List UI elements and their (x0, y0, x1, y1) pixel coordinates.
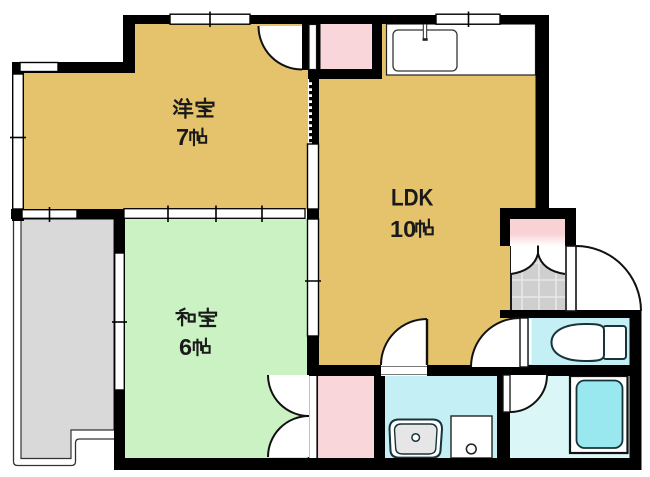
svg-text:7: 7 (176, 124, 189, 150)
svg-text:10: 10 (390, 216, 416, 242)
svg-text:LDK: LDK (391, 185, 434, 212)
svg-text:6: 6 (179, 334, 192, 360)
